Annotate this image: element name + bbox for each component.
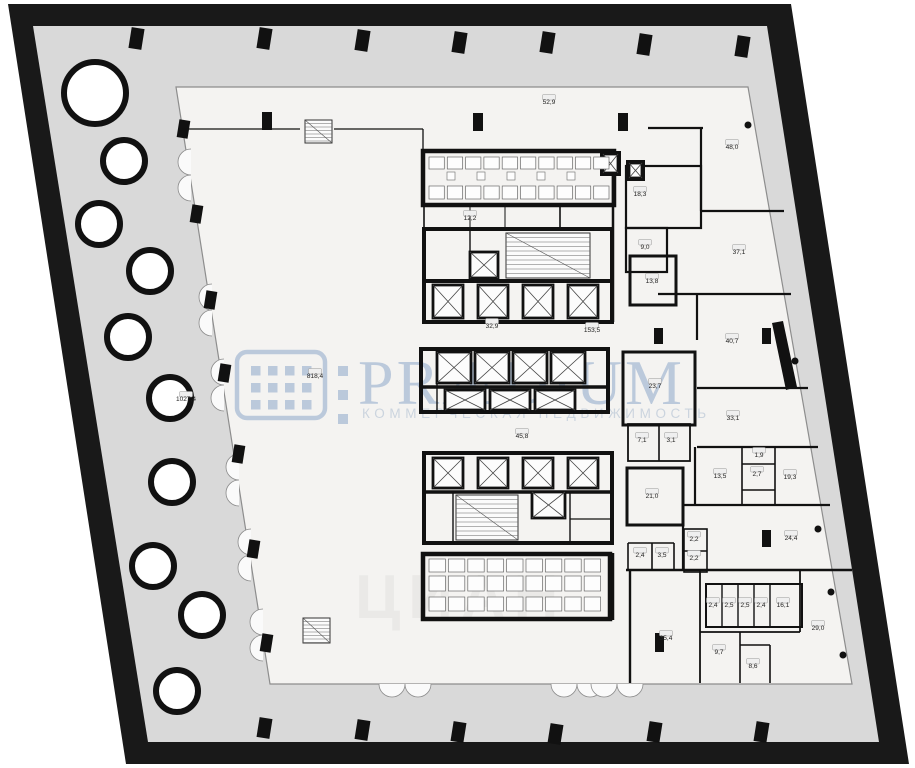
room-label: 21,0: [646, 489, 659, 501]
svg-text:2,5: 2,5: [724, 602, 733, 609]
svg-text:45,8: 45,8: [516, 433, 529, 440]
svg-text:818,4: 818,4: [307, 373, 324, 380]
svg-text:21,0: 21,0: [646, 493, 659, 500]
room-label: 23,7: [649, 379, 662, 391]
svg-text:2,4: 2,4: [635, 552, 644, 559]
room-label: 29,0: [812, 621, 825, 633]
room-label: 818,4: [307, 369, 324, 381]
room-label: 40,7: [726, 334, 739, 346]
floor-plan-svg: PRÆDIUM КОММЕРЧЕСКАЯ НЕДВИЖИМОСТЬ ЦИАН 5…: [0, 0, 915, 768]
room-label: 13,5: [714, 469, 727, 481]
svg-text:19,3: 19,3: [784, 474, 797, 481]
room-label: 33,1: [727, 411, 740, 423]
room-label: 45,8: [516, 429, 529, 441]
svg-text:1027,4: 1027,4: [176, 396, 196, 403]
svg-text:1,9: 1,9: [754, 452, 763, 459]
room-label: 48,0: [726, 140, 739, 152]
svg-text:3,1: 3,1: [666, 437, 675, 444]
room-label: 37,1: [733, 245, 746, 257]
floor-plan-page: PRÆDIUM КОММЕРЧЕСКАЯ НЕДВИЖИМОСТЬ ЦИАН 5…: [0, 0, 915, 768]
svg-text:48,0: 48,0: [726, 144, 739, 151]
svg-text:2,5: 2,5: [740, 602, 749, 609]
room-label: 35,4: [660, 631, 673, 643]
room-label: 16,1: [777, 598, 790, 610]
room-label: 19,3: [784, 470, 797, 482]
svg-text:33,1: 33,1: [727, 415, 740, 422]
svg-text:2,4: 2,4: [708, 602, 717, 609]
svg-text:8,6: 8,6: [748, 663, 757, 670]
svg-text:40,7: 40,7: [726, 338, 739, 345]
room-label: 52,9: [543, 95, 556, 107]
svg-text:32,9: 32,9: [486, 323, 499, 330]
svg-text:2,7: 2,7: [752, 471, 761, 478]
room-label: 18,3: [634, 187, 647, 199]
svg-text:7,1: 7,1: [637, 437, 646, 444]
svg-text:23,7: 23,7: [649, 383, 662, 390]
svg-text:2,2: 2,2: [689, 536, 698, 543]
svg-text:24,4: 24,4: [785, 535, 798, 542]
svg-text:35,4: 35,4: [660, 635, 673, 642]
svg-text:9,0: 9,0: [640, 244, 649, 251]
room-label: 32,9: [486, 319, 499, 331]
svg-text:13,8: 13,8: [646, 278, 659, 285]
room-label: 24,4: [785, 531, 798, 543]
svg-text:12,2: 12,2: [464, 215, 477, 222]
svg-text:18,3: 18,3: [634, 191, 647, 198]
svg-text:9,7: 9,7: [714, 649, 723, 656]
svg-text:16,1: 16,1: [777, 602, 790, 609]
svg-text:2,2: 2,2: [689, 555, 698, 562]
svg-text:29,0: 29,0: [812, 625, 825, 632]
svg-text:2,4: 2,4: [756, 602, 765, 609]
svg-text:13,5: 13,5: [714, 473, 727, 480]
svg-text:3,5: 3,5: [657, 552, 666, 559]
svg-text:52,9: 52,9: [543, 99, 556, 106]
room-label: 153,5: [584, 323, 601, 335]
svg-text:153,5: 153,5: [584, 327, 601, 334]
svg-text:37,1: 37,1: [733, 249, 746, 256]
room-label: 13,8: [646, 274, 659, 286]
room-label: 12,2: [464, 211, 477, 223]
